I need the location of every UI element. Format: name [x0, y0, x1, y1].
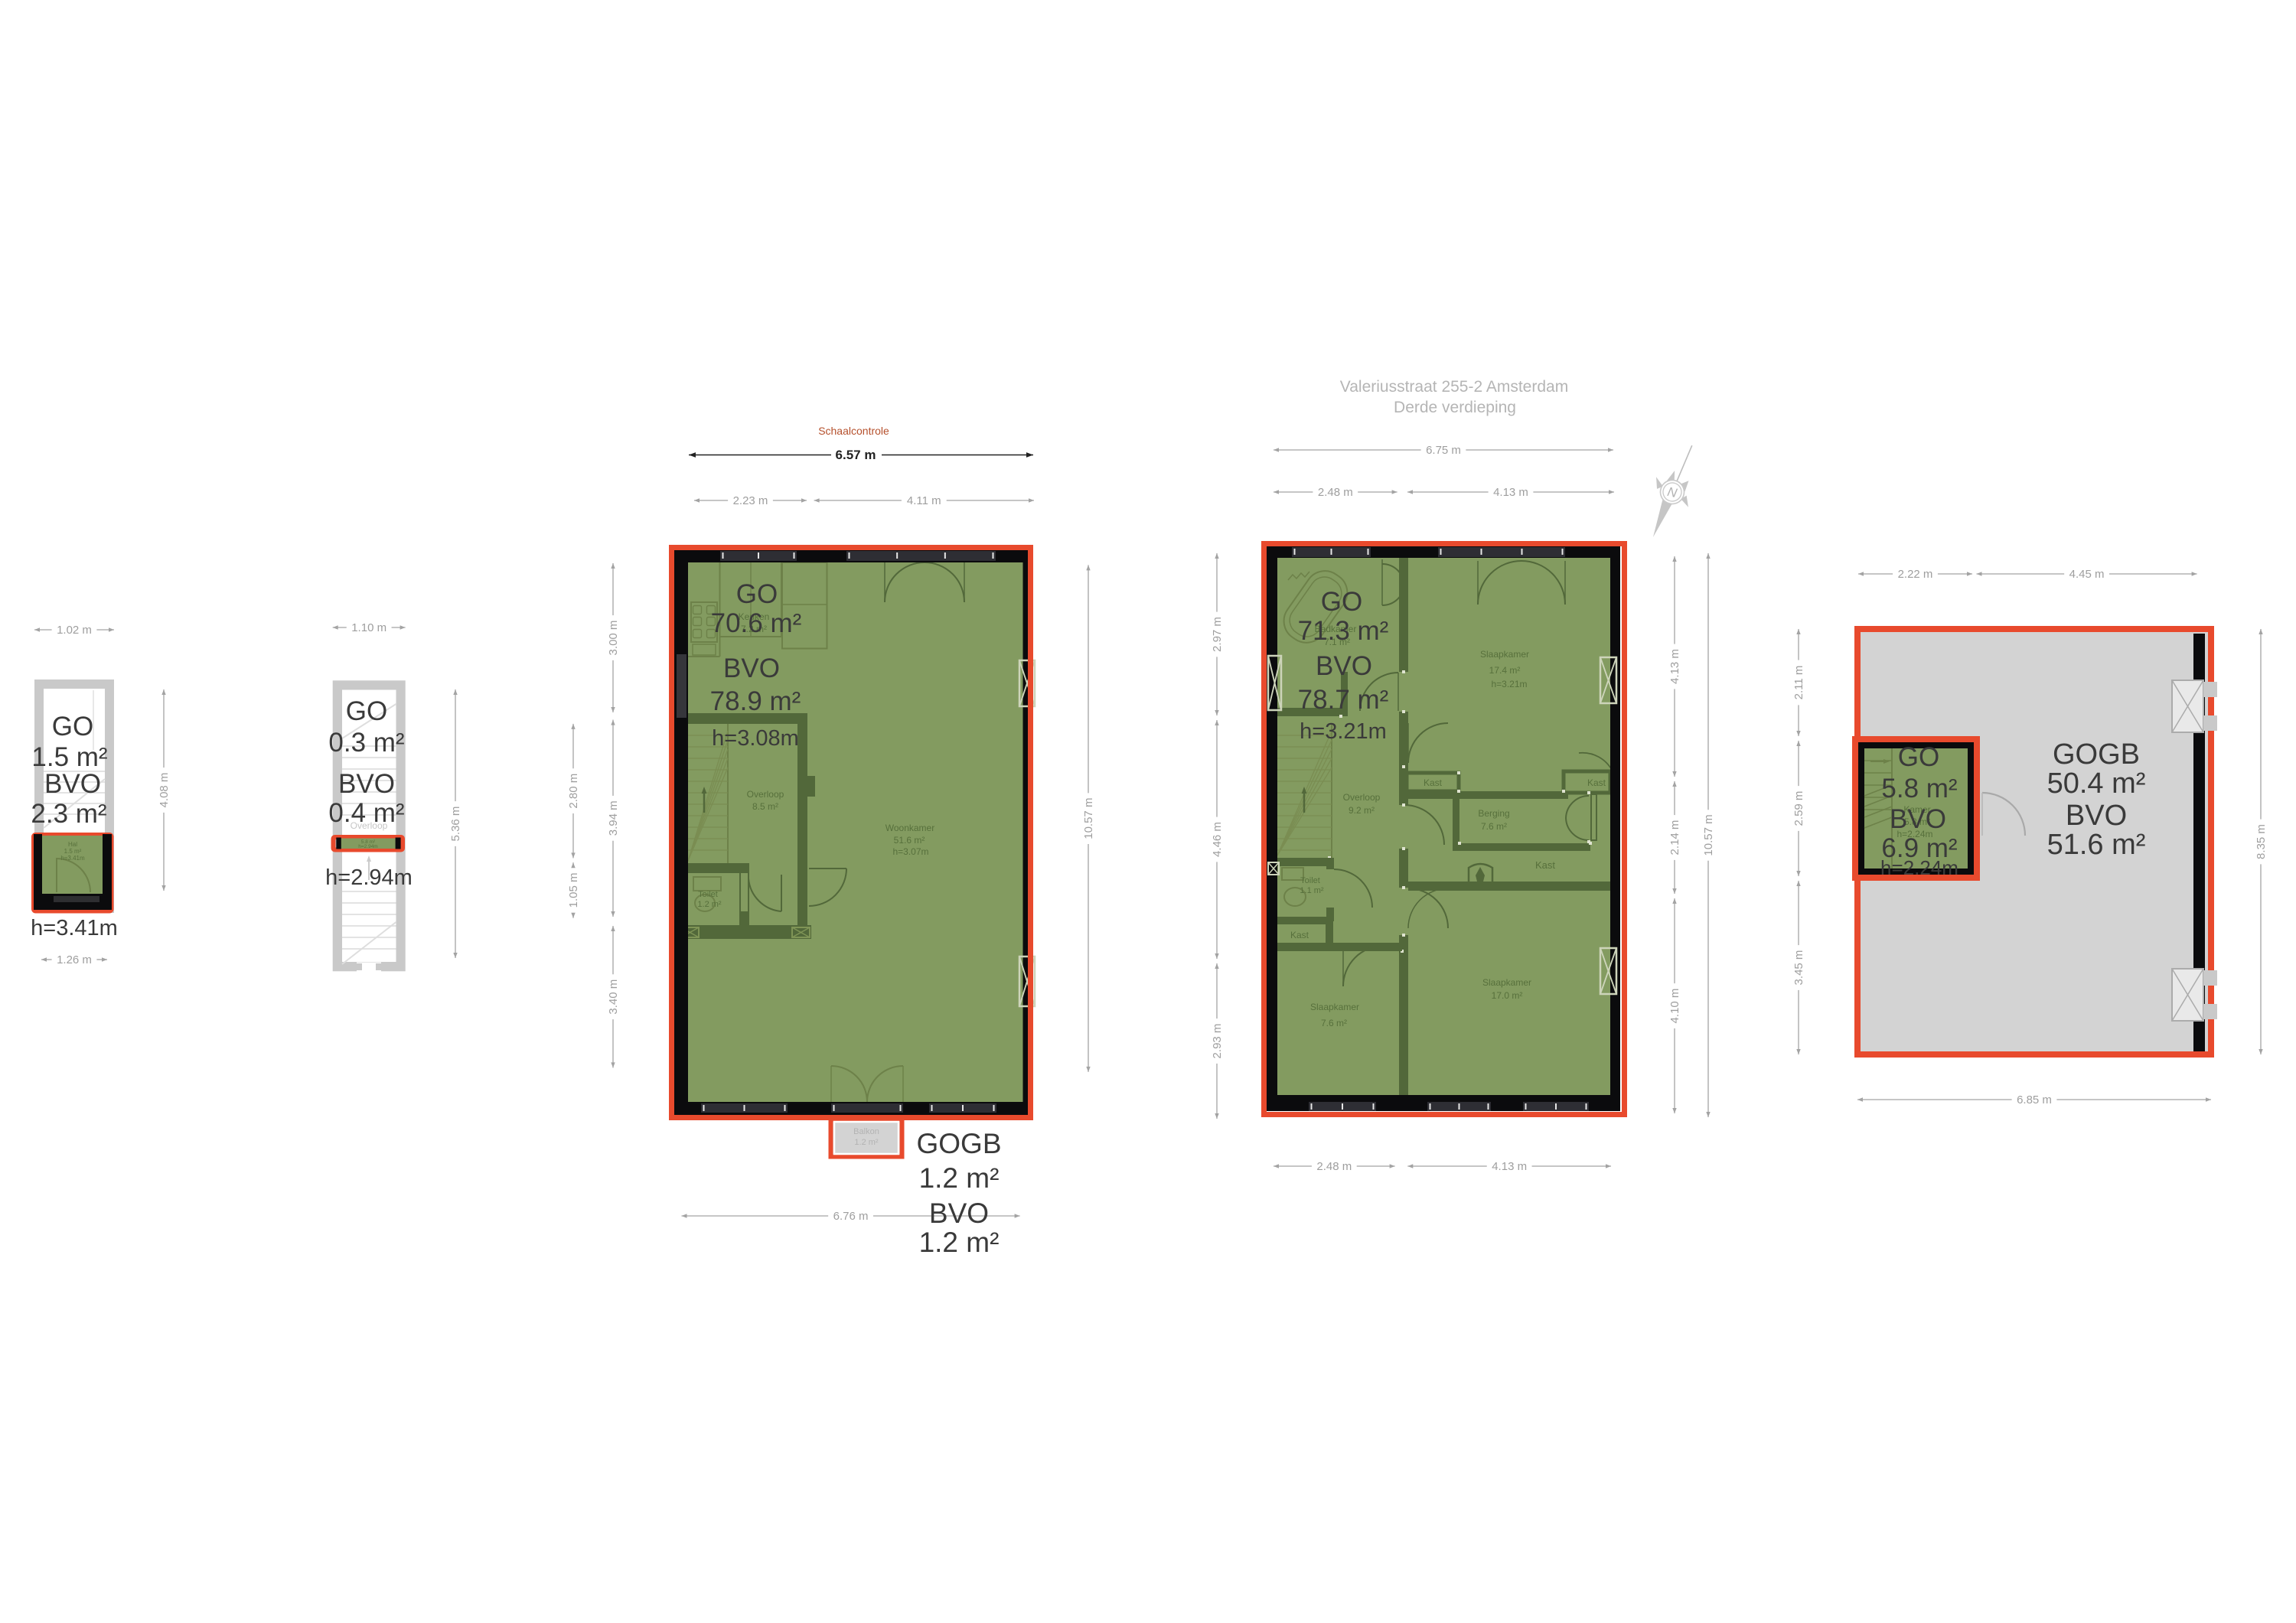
svg-text:BVO: BVO — [1316, 651, 1372, 681]
svg-text:2.3 m²: 2.3 m² — [31, 799, 106, 829]
svg-text:8.35 m: 8.35 m — [2255, 824, 2268, 859]
svg-text:Slaapkamer: Slaapkamer — [1310, 1002, 1359, 1012]
svg-text:2.80 m: 2.80 m — [567, 774, 580, 809]
svg-text:GOGB: GOGB — [916, 1128, 1001, 1159]
svg-text:6.85 m: 6.85 m — [2017, 1093, 2052, 1106]
svg-text:78.9 m²: 78.9 m² — [710, 686, 801, 716]
svg-text:h=3.21m: h=3.21m — [1300, 719, 1387, 744]
svg-text:1.26 m: 1.26 m — [57, 953, 92, 966]
svg-text:0.3 m²: 0.3 m² — [328, 728, 404, 758]
svg-text:5.36 m: 5.36 m — [449, 807, 462, 842]
svg-text:3.45 m: 3.45 m — [1792, 950, 1805, 986]
svg-text:10.57 m: 10.57 m — [1082, 798, 1095, 839]
svg-text:h=2.94m: h=2.94m — [325, 865, 413, 890]
svg-text:Overloop: Overloop — [747, 789, 784, 800]
svg-text:78.7 m²: 78.7 m² — [1298, 685, 1389, 715]
svg-text:2.93 m: 2.93 m — [1211, 1024, 1224, 1059]
svg-text:GOGB: GOGB — [2053, 738, 2140, 771]
svg-text:Toilet: Toilet — [1300, 876, 1320, 885]
svg-text:1.1 m²: 1.1 m² — [1300, 886, 1324, 895]
svg-text:0.4 m²: 0.4 m² — [328, 798, 404, 828]
svg-text:2.48 m: 2.48 m — [1316, 1160, 1352, 1173]
svg-text:2.23 m: 2.23 m — [733, 494, 768, 507]
svg-text:Overloop: Overloop — [1343, 792, 1381, 803]
svg-text:1.02 m: 1.02 m — [57, 624, 92, 637]
svg-text:Kast: Kast — [1424, 777, 1443, 788]
svg-text:9.2 m²: 9.2 m² — [1349, 805, 1375, 816]
svg-text:Schaalcontrole: Schaalcontrole — [818, 425, 889, 437]
svg-text:70.6 m²: 70.6 m² — [711, 608, 802, 638]
svg-text:3.00 m: 3.00 m — [607, 621, 620, 656]
svg-text:2.22 m: 2.22 m — [1898, 568, 1933, 581]
svg-text:Berging: Berging — [1478, 808, 1509, 819]
svg-text:17.0 m²: 17.0 m² — [1492, 990, 1523, 1001]
svg-text:2.14 m: 2.14 m — [1668, 820, 1681, 855]
svg-text:6.75 m: 6.75 m — [1426, 444, 1461, 457]
svg-text:1.2 m²: 1.2 m² — [919, 1162, 1000, 1194]
svg-text:17.4 m²: 17.4 m² — [1489, 665, 1521, 676]
svg-text:Kast: Kast — [1587, 777, 1606, 788]
svg-text:GO: GO — [52, 712, 93, 741]
svg-text:Balkon: Balkon — [853, 1127, 879, 1136]
svg-text:6.76 m: 6.76 m — [833, 1210, 869, 1223]
svg-text:10.57 m: 10.57 m — [1702, 814, 1715, 855]
svg-text:51.6 m²: 51.6 m² — [894, 835, 925, 846]
svg-text:Slaapkamer: Slaapkamer — [1482, 977, 1531, 988]
svg-text:GO: GO — [736, 579, 778, 609]
svg-text:1.10 m: 1.10 m — [351, 621, 386, 634]
svg-text:4.10 m: 4.10 m — [1668, 989, 1681, 1024]
svg-text:4.13 m: 4.13 m — [1668, 649, 1681, 684]
svg-text:BVO: BVO — [723, 653, 780, 683]
svg-text:2.59 m: 2.59 m — [1792, 791, 1805, 826]
svg-text:h=3.07m: h=3.07m — [892, 846, 928, 857]
svg-text:71.3 m²: 71.3 m² — [1298, 616, 1389, 646]
svg-text:BVO: BVO — [1890, 804, 1946, 834]
svg-text:Toilet: Toilet — [698, 890, 718, 899]
svg-text:4.13 m: 4.13 m — [1492, 1160, 1527, 1173]
svg-text:50.4 m²: 50.4 m² — [2047, 768, 2146, 800]
svg-text:h=3.08m: h=3.08m — [712, 726, 799, 751]
svg-text:GO: GO — [346, 696, 387, 726]
svg-text:BVO: BVO — [929, 1198, 989, 1229]
svg-text:51.6 m²: 51.6 m² — [2047, 829, 2146, 861]
svg-text:Derde verdieping: Derde verdieping — [1394, 399, 1516, 416]
svg-text:BVO: BVO — [338, 769, 395, 799]
svg-text:h=2.24m: h=2.24m — [1880, 856, 1958, 879]
svg-text:Kast: Kast — [1535, 859, 1555, 871]
svg-text:8.5 m²: 8.5 m² — [752, 801, 778, 812]
svg-text:7.6 m²: 7.6 m² — [1321, 1018, 1347, 1028]
svg-text:4.13 m: 4.13 m — [1493, 486, 1528, 499]
svg-text:Woonkamer: Woonkamer — [885, 823, 934, 833]
svg-text:5.8 m²: 5.8 m² — [1881, 774, 1957, 803]
svg-text:4.08 m: 4.08 m — [158, 773, 171, 808]
svg-text:1.2 m²: 1.2 m² — [919, 1227, 1000, 1258]
svg-text:1.05 m: 1.05 m — [567, 873, 580, 908]
svg-text:Valeriusstraat 255-2 Amsterdam: Valeriusstraat 255-2 Amsterdam — [1340, 378, 1568, 396]
svg-text:6.57 m: 6.57 m — [836, 448, 876, 462]
svg-text:3.40 m: 3.40 m — [607, 979, 620, 1015]
svg-text:1.5 m²: 1.5 m² — [64, 848, 82, 855]
svg-text:GO: GO — [1321, 587, 1362, 617]
svg-text:h=3.21m: h=3.21m — [1491, 679, 1527, 689]
svg-text:h=3.41m: h=3.41m — [31, 916, 118, 940]
svg-text:1.5 m²: 1.5 m² — [31, 742, 107, 772]
svg-text:h=3.41m: h=3.41m — [60, 855, 85, 862]
svg-text:7.6 m²: 7.6 m² — [1481, 821, 1507, 832]
svg-text:2.97 m: 2.97 m — [1211, 617, 1224, 652]
svg-text:4.11 m: 4.11 m — [907, 494, 941, 507]
svg-text:3.94 m: 3.94 m — [607, 800, 620, 836]
svg-text:Kast: Kast — [1290, 930, 1309, 940]
svg-text:4.45 m: 4.45 m — [2069, 568, 2105, 581]
svg-text:2.11 m: 2.11 m — [1792, 666, 1805, 700]
svg-text:Slaapkamer: Slaapkamer — [1480, 649, 1529, 660]
svg-text:4.46 m: 4.46 m — [1211, 822, 1224, 857]
svg-text:1.2 m²: 1.2 m² — [697, 900, 722, 909]
svg-text:BVO: BVO — [44, 769, 101, 799]
svg-text:BVO: BVO — [2066, 800, 2127, 832]
svg-text:h=2.94m: h=2.94m — [358, 844, 377, 849]
svg-text:GO: GO — [1898, 742, 1939, 772]
svg-text:Hal: Hal — [68, 841, 77, 848]
svg-text:1.2 m²: 1.2 m² — [854, 1138, 879, 1147]
svg-text:2.48 m: 2.48 m — [1318, 486, 1353, 499]
